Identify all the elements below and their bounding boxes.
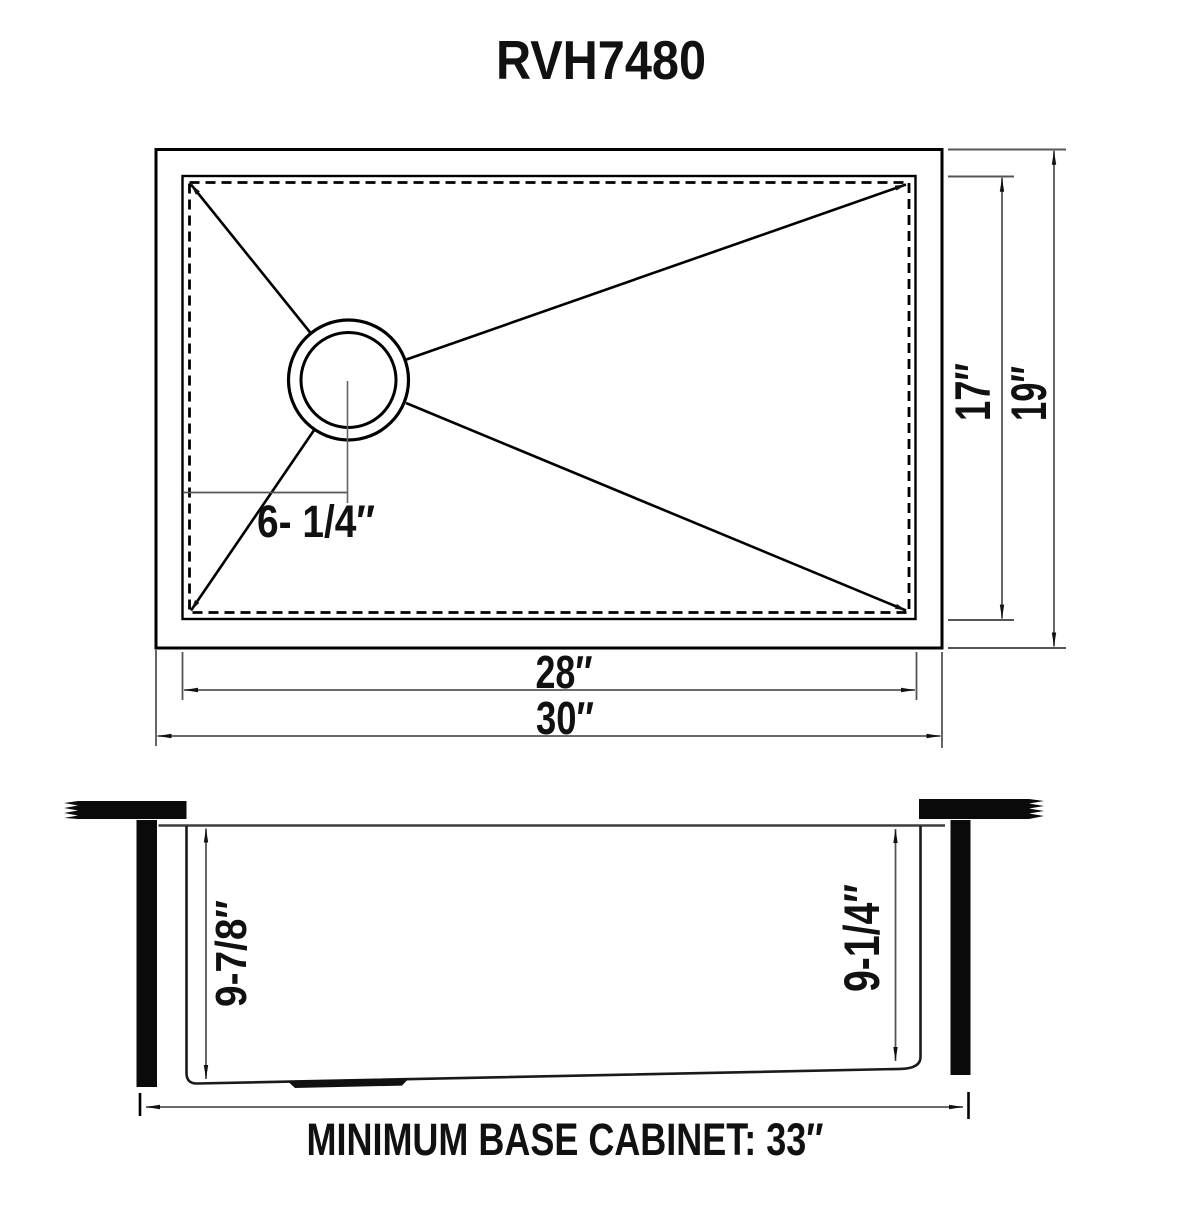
svg-text:28″: 28″ [536,646,593,698]
svg-text:9-1/4″: 9-1/4″ [834,884,890,992]
svg-text:MINIMUM BASE CABINET: 33″: MINIMUM BASE CABINET: 33″ [307,1114,824,1165]
svg-text:19″: 19″ [1001,366,1057,421]
svg-text:6- 1/4″: 6- 1/4″ [257,496,375,547]
svg-text:17″: 17″ [945,363,1001,421]
svg-text:RVH7480: RVH7480 [496,29,706,91]
svg-text:30″: 30″ [536,692,594,744]
svg-text:9-7/8″: 9-7/8″ [207,900,256,1007]
